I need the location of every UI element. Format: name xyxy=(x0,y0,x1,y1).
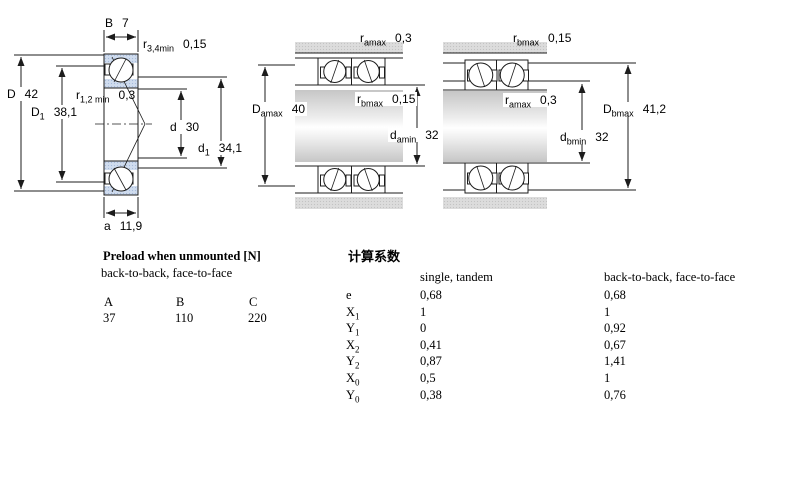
factor-value-single: 0,5 xyxy=(420,371,436,386)
dim-label-rbmax-b: rbmax0,15 xyxy=(513,31,571,45)
dim-value: 7 xyxy=(122,16,129,30)
factor-sym-text: Y xyxy=(346,388,355,402)
dim-value: 0,3 xyxy=(540,93,557,107)
dim-symbol: d xyxy=(390,128,397,142)
factor-value-paired: 0,68 xyxy=(604,288,626,303)
dim-value: 0,15 xyxy=(183,37,206,51)
dim-label-D: D42 xyxy=(5,87,40,101)
preload-value: 110 xyxy=(175,311,193,326)
dim-label-d: d30 xyxy=(168,120,201,134)
factor-value-single: 1 xyxy=(420,305,426,320)
factor-symbol: X2 xyxy=(346,338,360,353)
dim-subscript: amin xyxy=(397,134,417,144)
preload-col-header: B xyxy=(176,295,184,310)
dim-subscript: amax xyxy=(509,99,531,109)
dim-subscript: bmax xyxy=(517,37,539,47)
factor-symbol: X0 xyxy=(346,371,360,386)
factor-value-single: 0 xyxy=(420,321,426,336)
factor-sym-sub: 0 xyxy=(355,378,360,388)
dim-value: 41,2 xyxy=(643,102,666,116)
dim-label-B: B7 xyxy=(105,16,129,30)
factor-sym-sub: 2 xyxy=(355,361,360,371)
dim-subscript: 3,4min xyxy=(147,43,174,53)
dim-symbol: d xyxy=(198,141,205,155)
dim-value: 32 xyxy=(425,128,438,142)
dim-label-d1: d134,1 xyxy=(196,141,244,155)
dim-label-Dbmax: Dbmax41,2 xyxy=(601,102,668,116)
dim-label-dbmin: dbmin32 xyxy=(558,130,611,144)
factor-symbol: X1 xyxy=(346,305,360,320)
dim-label-damin: damin32 xyxy=(388,128,441,142)
dim-subscript: 1 xyxy=(205,147,210,157)
dim-subscript: 1 xyxy=(40,111,45,121)
dim-value: 42 xyxy=(25,87,38,101)
dim-symbol: D xyxy=(603,102,612,116)
factor-value-paired: 0,76 xyxy=(604,388,626,403)
preload-value: 220 xyxy=(248,311,267,326)
dim-symbol: a xyxy=(104,219,111,233)
dim-label-r34: r3,4min0,15 xyxy=(143,37,206,51)
dim-label-ramax-a: ramax0,3 xyxy=(360,31,412,45)
factor-sym-text: X xyxy=(346,371,355,385)
factors-col-header-single: single, tandem xyxy=(420,270,493,285)
factor-sym-text: Y xyxy=(346,354,355,368)
middle-figure-bearings xyxy=(321,60,385,191)
factor-value-paired: 0,67 xyxy=(604,338,626,353)
factor-sym-text: e xyxy=(346,288,352,302)
dim-symbol: D xyxy=(31,105,40,119)
dim-symbol: D xyxy=(252,102,261,116)
factor-value-single: 0,38 xyxy=(420,388,442,403)
factor-value-paired: 1 xyxy=(604,305,610,320)
factor-value-single: 0,87 xyxy=(420,354,442,369)
factor-sym-text: X xyxy=(346,305,355,319)
factor-value-single: 0,68 xyxy=(420,288,442,303)
factor-sym-sub: 1 xyxy=(355,328,360,338)
preload-col-header: A xyxy=(104,295,113,310)
dim-label-rbmax-a: rbmax0,15 xyxy=(355,92,417,106)
dim-value: 32 xyxy=(595,130,608,144)
dim-subscript: bmax xyxy=(612,108,634,118)
preload-subtitle: back-to-back, face-to-face xyxy=(101,266,232,281)
preload-col-header: C xyxy=(249,295,257,310)
factor-sym-text: X xyxy=(346,338,355,352)
dim-value: 30 xyxy=(186,120,199,134)
dim-symbol: D xyxy=(7,87,16,101)
factor-value-paired: 0,92 xyxy=(604,321,626,336)
factor-sym-sub: 2 xyxy=(355,345,360,355)
preload-value: 37 xyxy=(103,311,116,326)
factor-value-paired: 1,41 xyxy=(604,354,626,369)
dim-symbol: d xyxy=(170,120,177,134)
dim-subscript: amax xyxy=(261,108,283,118)
dim-value: 0,15 xyxy=(548,31,571,45)
dim-subscript: 1,2 min xyxy=(80,94,110,104)
dim-label-D1: D138,1 xyxy=(29,105,79,119)
factor-symbol: Y1 xyxy=(346,321,360,336)
factor-sym-text: Y xyxy=(346,321,355,335)
dim-subscript: bmin xyxy=(567,136,587,146)
factor-symbol: e xyxy=(346,288,352,303)
dim-value: 40 xyxy=(292,102,305,116)
dim-label-r12: r1,2 min0,3 xyxy=(76,88,135,102)
dim-symbol: B xyxy=(105,16,113,30)
dim-label-a: a11,9 xyxy=(104,219,142,233)
dim-value: 0,15 xyxy=(392,92,415,106)
right-figure-bearings xyxy=(468,63,529,190)
factor-symbol: Y0 xyxy=(346,388,360,403)
dim-label-Damax: Damax40 xyxy=(250,102,307,116)
dim-label-ramax-b: ramax0,3 xyxy=(503,93,559,107)
dim-symbol: d xyxy=(560,130,567,144)
dim-subscript: bmax xyxy=(361,98,383,108)
factor-symbol: Y2 xyxy=(346,354,360,369)
dim-value: 34,1 xyxy=(219,141,242,155)
dim-subscript: amax xyxy=(364,37,386,47)
dim-value: 11,9 xyxy=(120,219,142,233)
factors-col-header-paired: back-to-back, face-to-face xyxy=(604,270,735,285)
dim-value: 0,3 xyxy=(395,31,412,45)
factors-title: 计算系数 xyxy=(348,249,400,264)
page: B7 r3,4min0,15 D42 r1,2 min0,3 D138,1 d3… xyxy=(0,0,800,500)
factor-sym-sub: 0 xyxy=(355,395,360,405)
preload-title: Preload when unmounted [N] xyxy=(103,249,261,264)
factor-value-single: 0,41 xyxy=(420,338,442,353)
factor-sym-sub: 1 xyxy=(355,312,360,322)
factor-value-paired: 1 xyxy=(604,371,610,386)
dim-value: 38,1 xyxy=(54,105,77,119)
dim-value: 0,3 xyxy=(119,88,136,102)
